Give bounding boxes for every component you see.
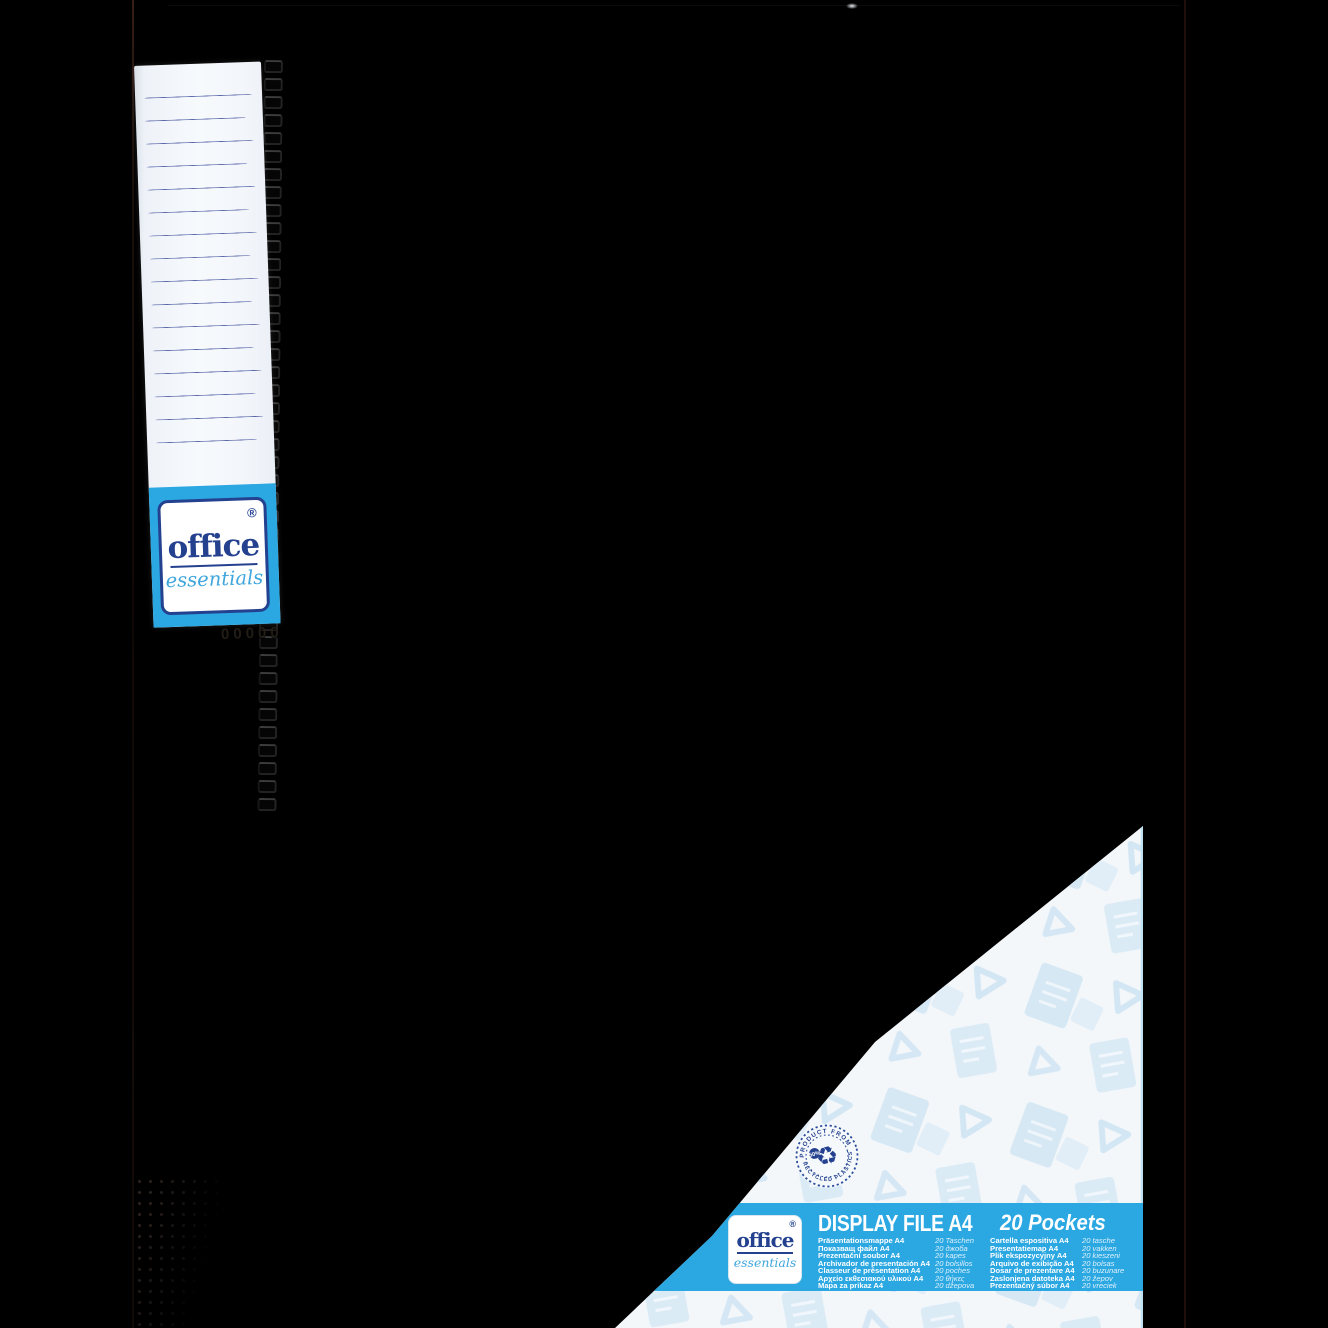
folder-left-edge [132,0,134,1328]
registered-trademark-icon: ® [789,1219,796,1229]
brand-divider [737,1252,793,1254]
language-label: Mapa za prikaz A4 [818,1282,935,1290]
ruled-line [144,94,252,99]
registered-trademark-icon: ® [247,505,257,520]
ruled-line [154,370,262,375]
comb-tooth [259,672,278,685]
ruled-line [155,393,256,398]
brand-logo: ® office essentials [157,497,270,616]
comb-tooth [258,690,277,703]
language-list-column-2: Cartella espositiva A420 taschePresentat… [990,1237,1205,1290]
brand-subname: essentials [729,1255,801,1270]
ruled-line [156,439,257,444]
ruled-line [147,163,248,168]
pocket-count-label: 20 vreciek [1082,1282,1117,1290]
comb-tooth [258,726,277,739]
ruled-line [153,347,254,352]
comb-tooth [263,114,282,127]
ruled-line [146,140,254,145]
brand-name: office [729,1231,801,1250]
brand-name: office [161,530,265,564]
spine-brand-panel: ® office essentials [149,483,281,627]
folder-right-edge [1184,0,1186,1328]
comb-tooth [258,780,277,793]
language-label: Prezentačný súbor A4 [990,1282,1082,1290]
ruled-line [151,301,252,306]
brand-subname: essentials [163,566,267,593]
comb-tooth [264,96,283,109]
comb-tooth [264,78,283,91]
product-banner: ® office essentials DISPLAY FILE A4 20 P… [560,1203,1143,1291]
comb-tooth [259,654,278,667]
comb-tooth [258,708,277,721]
dust-speck [846,3,858,9]
comb-tooth [264,60,283,73]
ruled-line [151,278,259,283]
spine-label-ruled-lines [144,94,268,466]
ruled-line [148,209,249,214]
ruled-line [145,117,246,122]
comb-tooth [257,798,276,811]
pocket-count: 20 Pockets [1000,1210,1106,1236]
folder-corner-texture [134,1176,220,1328]
comb-tooth [263,168,282,181]
ruled-line [150,255,251,260]
spine-label: ® office essentials [134,62,281,628]
pocket-count-label: 20 džepova [935,1282,974,1290]
comb-tooth [258,744,277,757]
ruled-line [152,324,260,329]
embossed-code: 00000 [221,624,283,643]
comb-tooth [258,762,277,775]
folder-top-edge [168,5,1180,6]
comb-tooth [263,132,282,145]
comb-tooth [263,150,282,163]
ruled-line [147,186,255,191]
product-photo-black-display-folder: ® office essentials 00000 [0,0,1328,1328]
ruled-line [149,232,257,237]
ruled-line [155,416,263,421]
brand-logo: ® office essentials [728,1215,802,1284]
language-row: Prezentačný súbor A420 vreciek [990,1282,1205,1290]
product-title: DISPLAY FILE A4 [818,1210,972,1237]
